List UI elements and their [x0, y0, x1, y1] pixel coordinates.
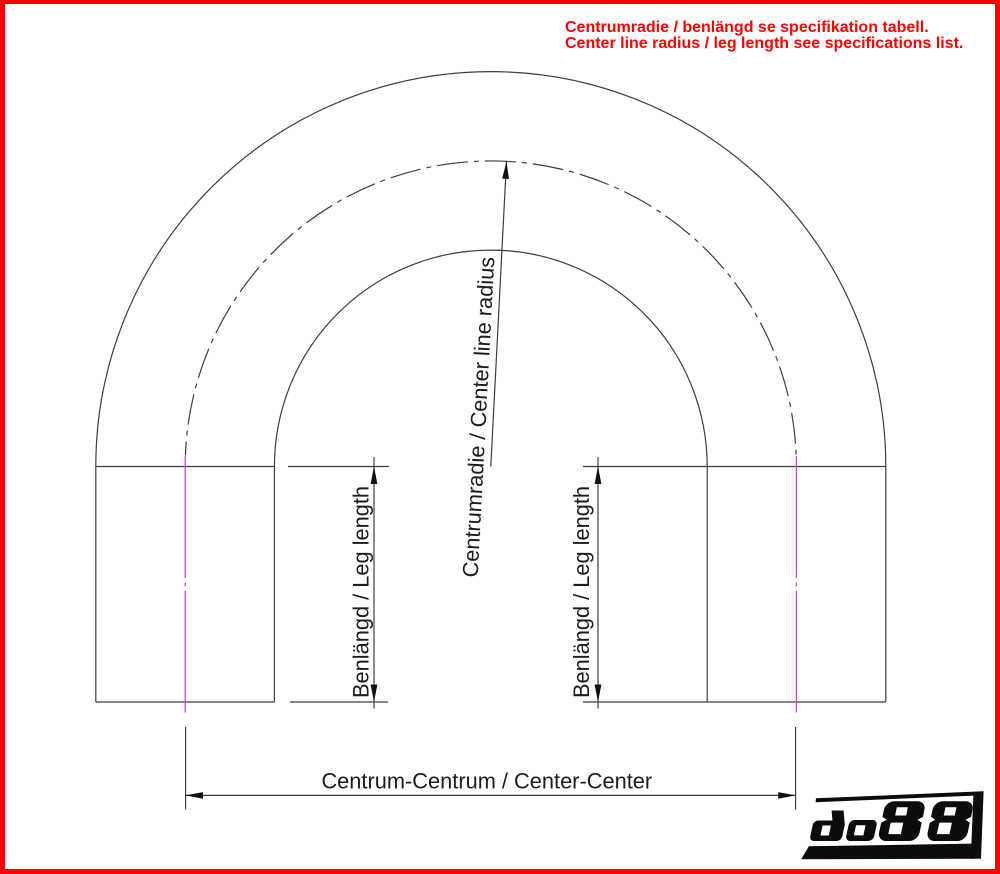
svg-text:Benlängd / Leg length: Benlängd / Leg length: [569, 486, 594, 698]
svg-text:Benlängd / Leg length: Benlängd / Leg length: [349, 486, 374, 698]
svg-text:Centrum-Centrum / Center-Cente: Centrum-Centrum / Center-Center: [321, 768, 652, 793]
